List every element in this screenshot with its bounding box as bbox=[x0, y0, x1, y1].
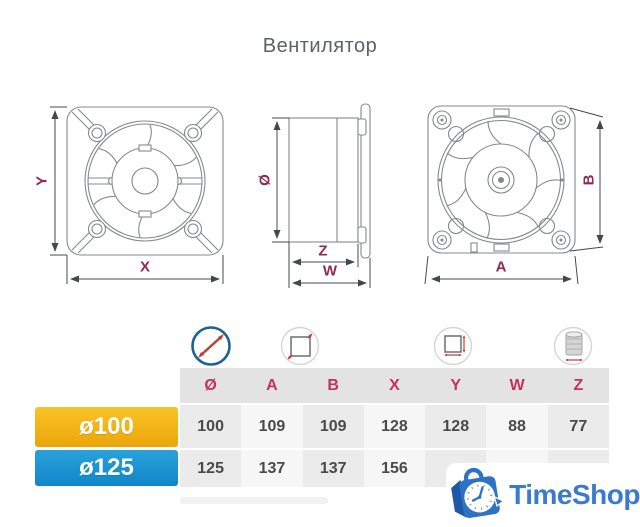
header-cell-z: Z bbox=[548, 368, 609, 403]
row-label-125: ø125 bbox=[35, 450, 178, 486]
cell-125-a: 137 bbox=[241, 450, 302, 487]
product-diagram-page: Вентилятор bbox=[0, 0, 640, 527]
cell-100-x: 128 bbox=[364, 405, 425, 448]
header-cell-w: W bbox=[486, 368, 547, 403]
table-shadow bbox=[180, 497, 328, 504]
dim-label-diameter: Ø bbox=[257, 174, 274, 186]
dim-label-b: B bbox=[581, 175, 598, 186]
back-view-drawing bbox=[425, 106, 603, 284]
dim-label-w: W bbox=[323, 263, 337, 280]
cell-100-b: 109 bbox=[303, 405, 364, 448]
front-view-drawing bbox=[50, 107, 223, 284]
technical-drawings bbox=[0, 0, 640, 310]
header-cell-diameter: Ø bbox=[180, 368, 241, 403]
side-view-drawing bbox=[272, 104, 370, 288]
row-label-100: ø100 bbox=[35, 407, 178, 447]
dim-label-x: X bbox=[140, 259, 150, 276]
table-row-100: 100 109 109 128 128 88 77 bbox=[180, 405, 609, 448]
header-cell-y: Y bbox=[425, 368, 486, 403]
cell-100-diameter: 100 bbox=[180, 405, 241, 448]
diameter-icon bbox=[189, 324, 233, 368]
header-cell-a: A bbox=[241, 368, 302, 403]
header-cell-b: B bbox=[303, 368, 364, 403]
dim-label-a: A bbox=[496, 259, 507, 276]
dim-label-z: Z bbox=[318, 243, 327, 260]
duct-depth-icon bbox=[551, 324, 595, 368]
cell-100-z: 77 bbox=[548, 405, 609, 448]
cell-100-y: 128 bbox=[425, 405, 486, 448]
header-cell-x: X bbox=[364, 368, 425, 403]
duct-panel-size-icon bbox=[431, 324, 475, 368]
timeshop-logo: TimeShop bbox=[446, 463, 640, 527]
clock-briefcase-icon bbox=[446, 464, 507, 526]
table-header-row: Ø A B X Y W Z bbox=[180, 368, 609, 403]
cell-100-w: 88 bbox=[486, 405, 547, 448]
cell-125-b: 137 bbox=[303, 450, 364, 487]
dim-label-y: Y bbox=[34, 176, 51, 186]
cell-125-x: 156 bbox=[364, 450, 425, 487]
panel-size-icon bbox=[278, 324, 322, 368]
cell-125-diameter: 125 bbox=[180, 450, 241, 487]
cell-100-a: 109 bbox=[241, 405, 302, 448]
timeshop-logo-text: TimeShop bbox=[509, 479, 640, 511]
